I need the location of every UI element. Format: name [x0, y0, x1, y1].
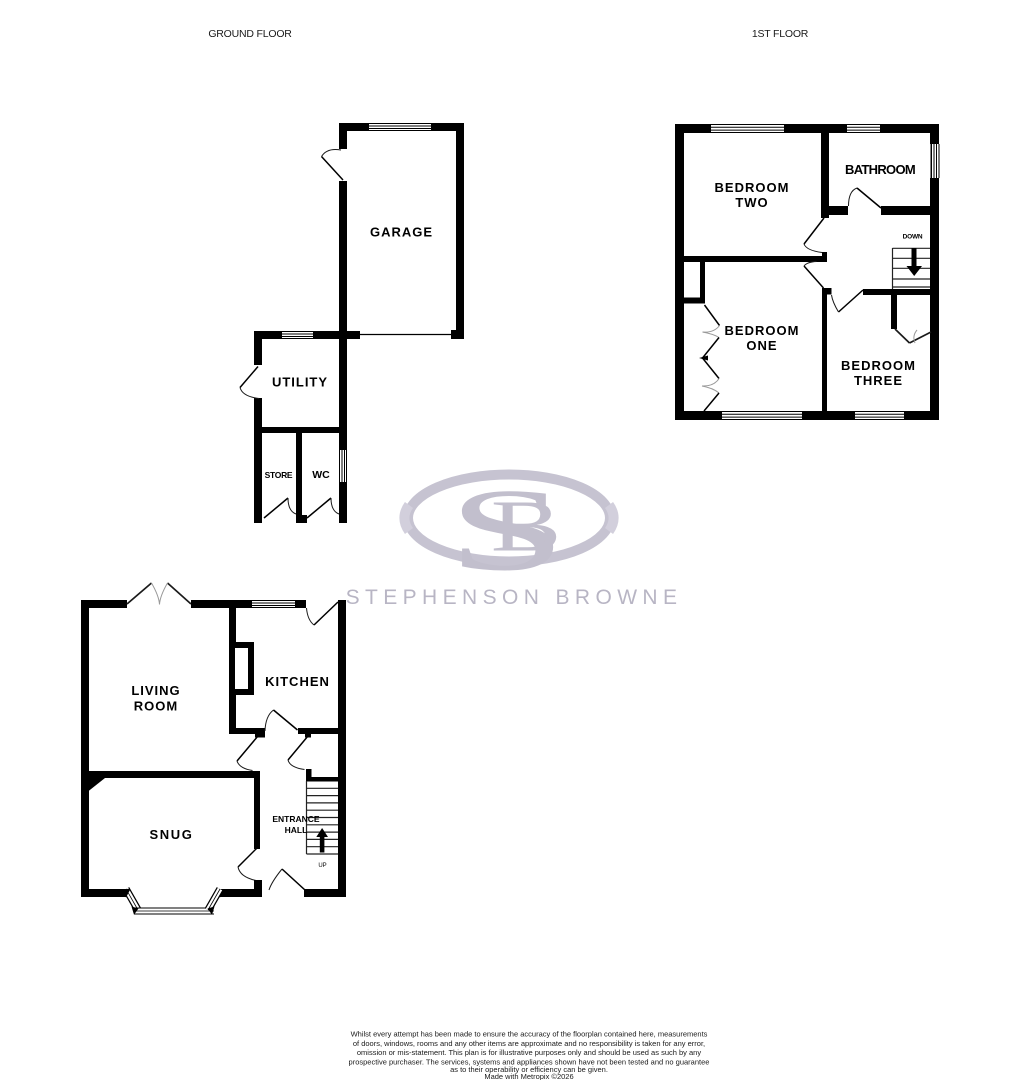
svg-text:HALL: HALL: [285, 825, 308, 835]
svg-text:GARAGE: GARAGE: [370, 225, 433, 240]
svg-text:1ST FLOOR: 1ST FLOOR: [752, 28, 809, 40]
svg-text:ROOM: ROOM: [134, 699, 178, 714]
svg-text:DOWN: DOWN: [903, 234, 923, 241]
svg-text:UTILITY: UTILITY: [272, 375, 328, 390]
svg-text:STORE: STORE: [265, 470, 293, 480]
svg-text:Made with Metropix ©2026: Made with Metropix ©2026: [484, 1072, 573, 1080]
svg-text:UP: UP: [318, 863, 326, 869]
svg-text:LIVING: LIVING: [131, 683, 180, 698]
svg-text:ENTRANCE: ENTRANCE: [272, 814, 320, 824]
svg-text:Whilst every attempt has been: Whilst every attempt has been made to en…: [351, 1030, 708, 1039]
svg-text:BEDROOM: BEDROOM: [715, 180, 790, 195]
svg-text:THREE: THREE: [854, 373, 903, 388]
svg-text:B: B: [491, 485, 562, 566]
svg-text:BEDROOM: BEDROOM: [725, 323, 800, 338]
svg-text:TWO: TWO: [735, 195, 768, 210]
svg-text:BEDROOM: BEDROOM: [841, 358, 916, 373]
svg-text:BATHROOM: BATHROOM: [845, 162, 915, 177]
svg-text:omission or mis-statement. Thi: omission or mis-statement. This plan is …: [357, 1048, 701, 1057]
svg-text:STEPHENSON BROWNE: STEPHENSON BROWNE: [346, 586, 683, 609]
svg-text:SNUG: SNUG: [150, 827, 194, 842]
svg-text:of doors, windows, rooms and a: of doors, windows, rooms and any other i…: [353, 1039, 705, 1048]
svg-text:GROUND FLOOR: GROUND FLOOR: [208, 28, 292, 40]
svg-text:ONE: ONE: [746, 338, 777, 353]
svg-text:WC: WC: [312, 469, 330, 481]
svg-text:KITCHEN: KITCHEN: [265, 674, 330, 689]
